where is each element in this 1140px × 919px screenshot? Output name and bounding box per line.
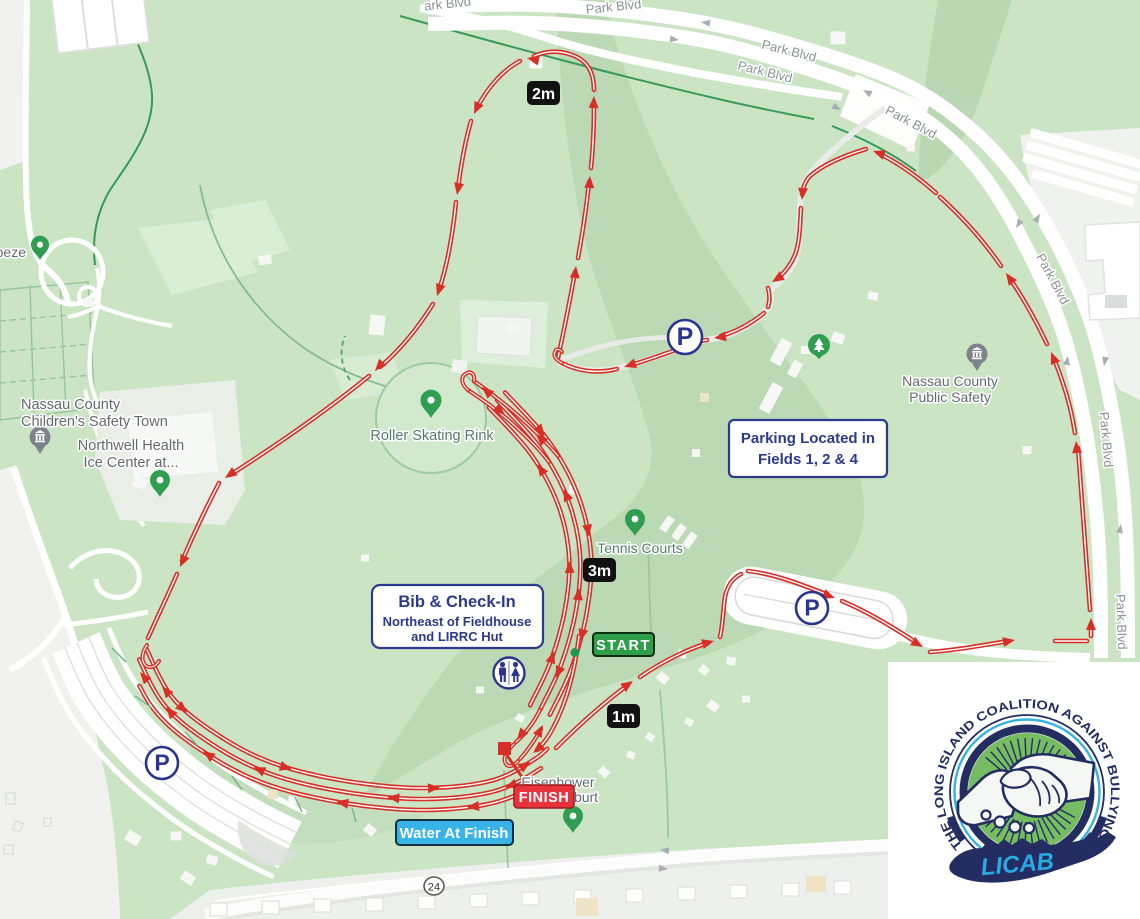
svg-text:Children's Safety Town: Children's Safety Town xyxy=(21,414,168,430)
svg-text:2m: 2m xyxy=(532,86,555,103)
svg-text:START: START xyxy=(596,638,651,654)
svg-text:3m: 3m xyxy=(588,563,611,580)
svg-text:1m: 1m xyxy=(612,709,635,726)
svg-text:24: 24 xyxy=(428,882,440,894)
svg-text:Northwell Health: Northwell Health xyxy=(78,438,184,454)
svg-text:peze: peze xyxy=(0,244,26,260)
svg-text:Fields 1, 2 & 4: Fields 1, 2 & 4 xyxy=(758,451,859,468)
svg-text:Tennis Courts: Tennis Courts xyxy=(597,540,683,556)
svg-text:Public Safety: Public Safety xyxy=(909,389,991,405)
svg-text:P: P xyxy=(804,595,819,621)
svg-text:FINISH: FINISH xyxy=(519,790,570,806)
svg-text:burt: burt xyxy=(574,789,598,805)
svg-text:Water At Finish: Water At Finish xyxy=(400,825,509,842)
svg-text:Ice Center at...: Ice Center at... xyxy=(83,455,178,471)
svg-text:and LIRRC Hut: and LIRRC Hut xyxy=(411,629,503,644)
svg-text:Nassau County: Nassau County xyxy=(902,373,998,389)
svg-text:Northeast of Fieldhouse: Northeast of Fieldhouse xyxy=(383,614,532,629)
svg-text:Park Blvd: Park Blvd xyxy=(1113,594,1130,650)
svg-text:P: P xyxy=(154,750,169,776)
svg-text:P: P xyxy=(677,323,694,351)
svg-text:Bib & Check-In: Bib & Check-In xyxy=(398,593,515,611)
svg-text:Nassau County: Nassau County xyxy=(21,397,121,413)
svg-text:Roller Skating Rink: Roller Skating Rink xyxy=(370,428,494,444)
svg-text:Parking Located in: Parking Located in xyxy=(741,430,875,447)
